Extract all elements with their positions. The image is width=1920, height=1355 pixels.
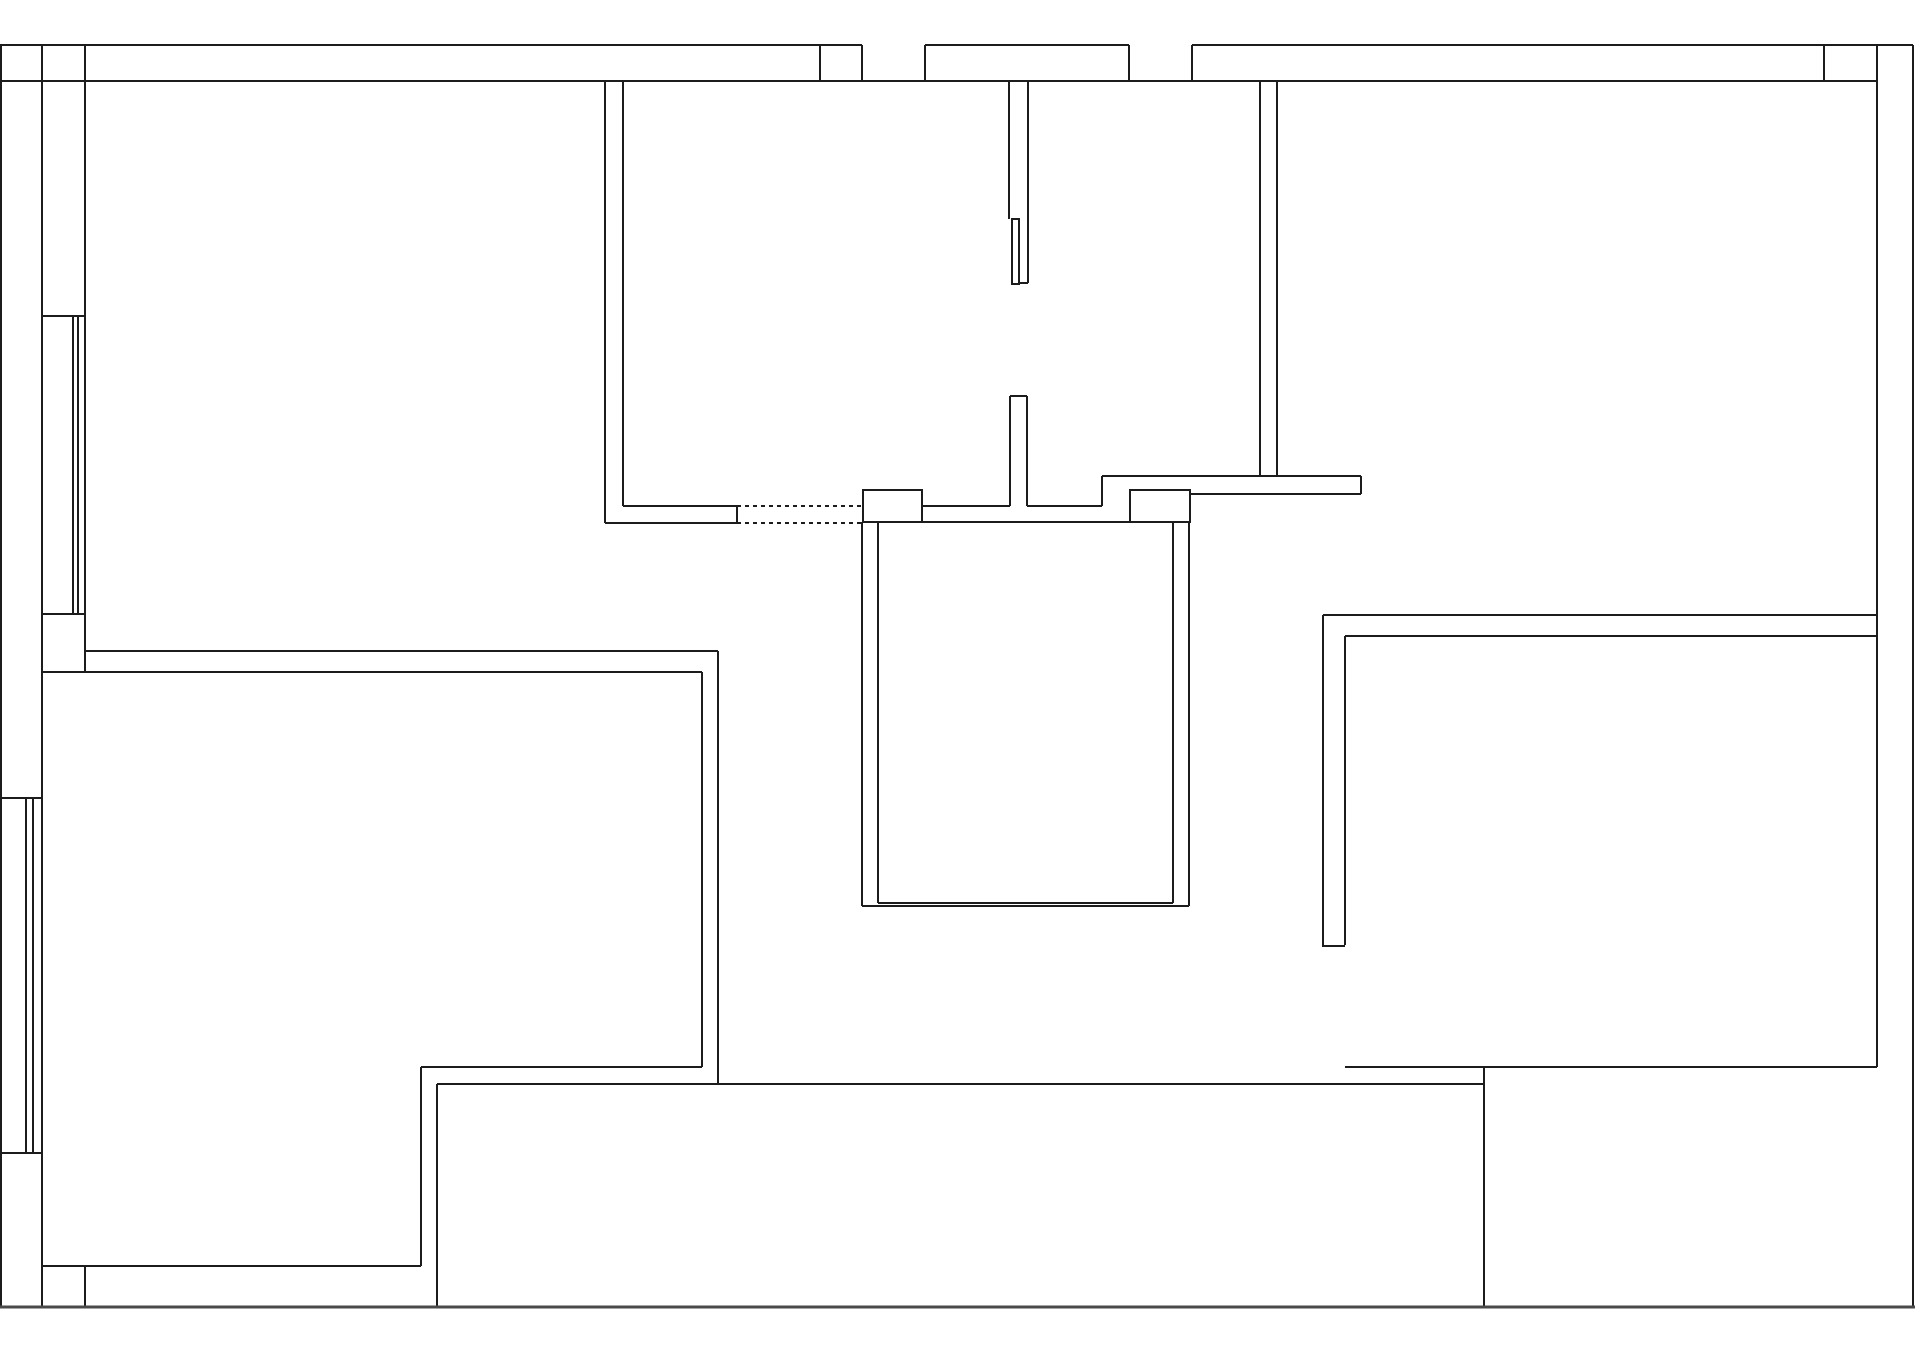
door-leaf <box>1012 219 1019 284</box>
wall-pier <box>1130 490 1190 522</box>
floor-plan-drawing <box>0 0 1920 1355</box>
floor-plan-page <box>0 0 1920 1355</box>
wall-pier <box>863 490 922 522</box>
